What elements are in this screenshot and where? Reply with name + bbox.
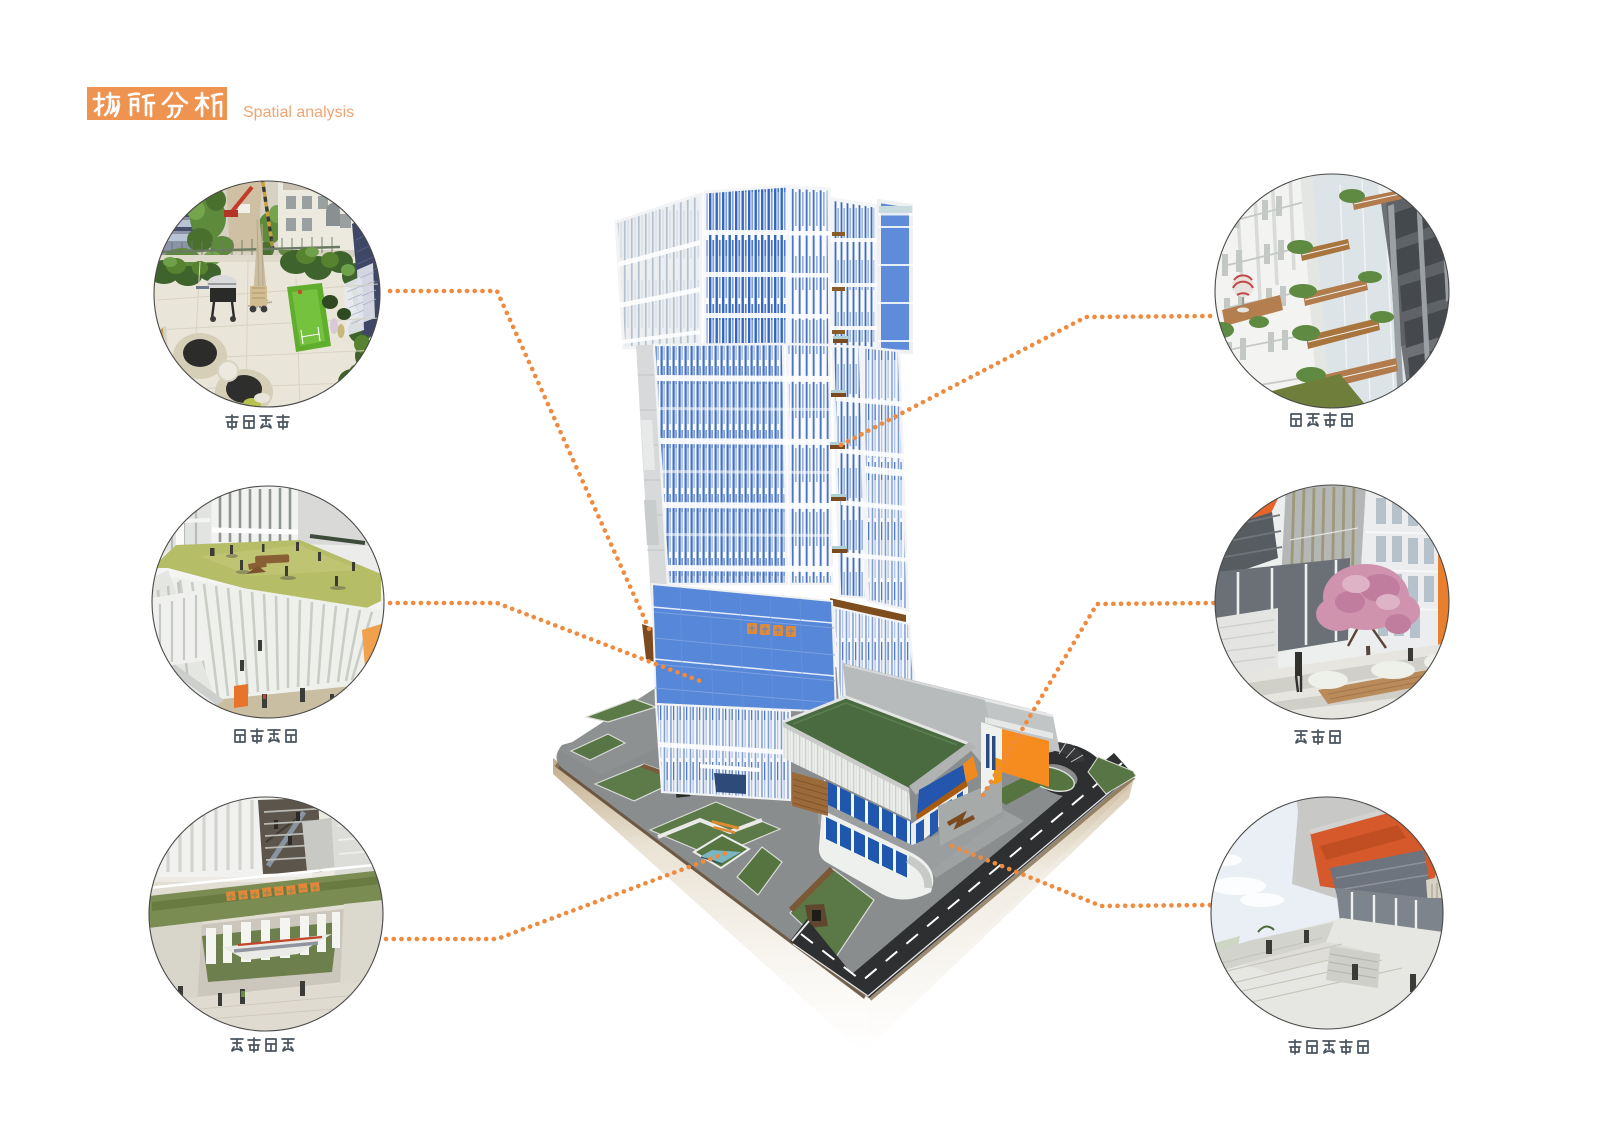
svg-text:Spatial analysis: Spatial analysis <box>243 104 354 121</box>
